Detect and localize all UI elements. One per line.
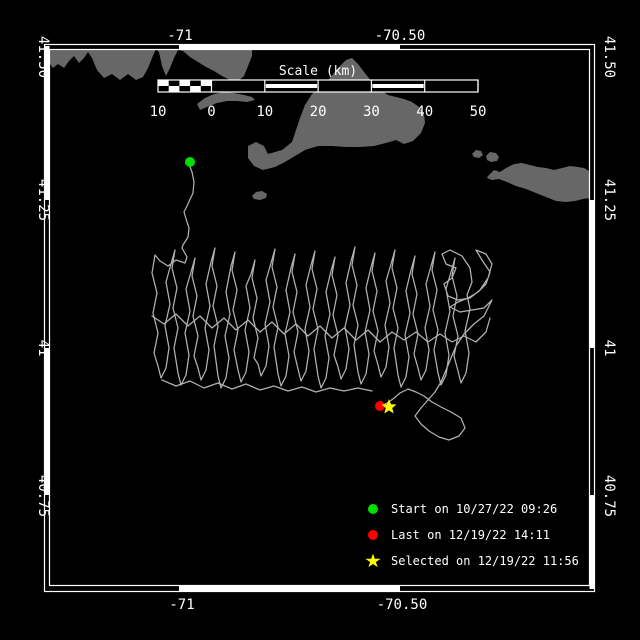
tracking-map-window: -71-71-70.50-70.5041.5041.5041.2541.2541… — [0, 0, 640, 640]
x-tick-top-1: -70.50 — [375, 28, 426, 44]
scalebar-tick-0: 10 — [150, 104, 167, 120]
land-elizabeth-islands — [197, 92, 255, 110]
scalebar-title: Scale (km) — [279, 64, 357, 79]
land-nantucket — [487, 163, 589, 202]
y-tick-right-0: 41.50 — [601, 36, 617, 78]
start-marker — [185, 157, 195, 167]
scalebar-checker — [190, 86, 201, 92]
scalebar-tick-6: 50 — [470, 104, 487, 120]
scalebar-tick-1: 0 — [207, 104, 215, 120]
scalebar-stripe — [266, 84, 317, 88]
selected-legend-icon — [364, 554, 382, 569]
legend-item-selected: Selected on 12/19/22 11:56 — [364, 548, 579, 574]
y-tick-right-2: 41 — [601, 340, 617, 357]
frame-band-right — [590, 200, 595, 348]
scalebar-tick-5: 40 — [416, 104, 433, 120]
frame-band-top — [179, 45, 400, 50]
scalebar-stripe — [372, 84, 423, 88]
start-legend-icon — [364, 504, 382, 514]
legend: Start on 10/27/22 09:26 Last on 12/19/22… — [364, 496, 579, 574]
y-tick-left-2: 41 — [35, 340, 51, 357]
scalebar-tick-2: 10 — [256, 104, 273, 120]
y-tick-right-1: 41.25 — [601, 179, 617, 221]
land-mainland-coast — [45, 49, 252, 81]
y-tick-left-1: 41.25 — [35, 179, 51, 221]
track-line-1 — [152, 314, 490, 342]
y-tick-left-3: 40.75 — [35, 475, 51, 517]
legend-item-start: Start on 10/27/22 09:26 — [364, 496, 579, 522]
frame-band-left — [45, 348, 50, 495]
y-tick-left-0: 41.50 — [35, 36, 51, 78]
x-tick-bottom-1: -70.50 — [377, 597, 428, 613]
scalebar-tick-3: 20 — [310, 104, 327, 120]
scalebar-checker — [179, 80, 190, 86]
legend-item-last: Last on 12/19/22 14:11 — [364, 522, 579, 548]
selected-marker — [381, 399, 396, 414]
land-tuckernuck — [486, 152, 499, 162]
scalebar-checker — [158, 80, 169, 86]
land-muskeget — [472, 150, 483, 158]
legend-start-label: Start on 10/27/22 09:26 — [391, 502, 557, 516]
track-line-2 — [162, 380, 372, 392]
land-nomans-land — [252, 191, 267, 200]
scalebar-checker — [201, 80, 212, 86]
legend-last-label: Last on 12/19/22 14:11 — [391, 528, 550, 542]
legend-selected-label: Selected on 12/19/22 11:56 — [391, 554, 579, 568]
track-line-0 — [152, 167, 492, 440]
scalebar-checker — [169, 86, 180, 92]
scalebar-tick-4: 30 — [363, 104, 380, 120]
x-tick-top-0: -71 — [167, 28, 192, 44]
x-tick-bottom-0: -71 — [169, 597, 194, 613]
y-tick-right-3: 40.75 — [601, 475, 617, 517]
frame-band-bottom — [179, 586, 400, 592]
last-legend-icon — [364, 530, 382, 540]
frame-band-right — [590, 495, 595, 589]
